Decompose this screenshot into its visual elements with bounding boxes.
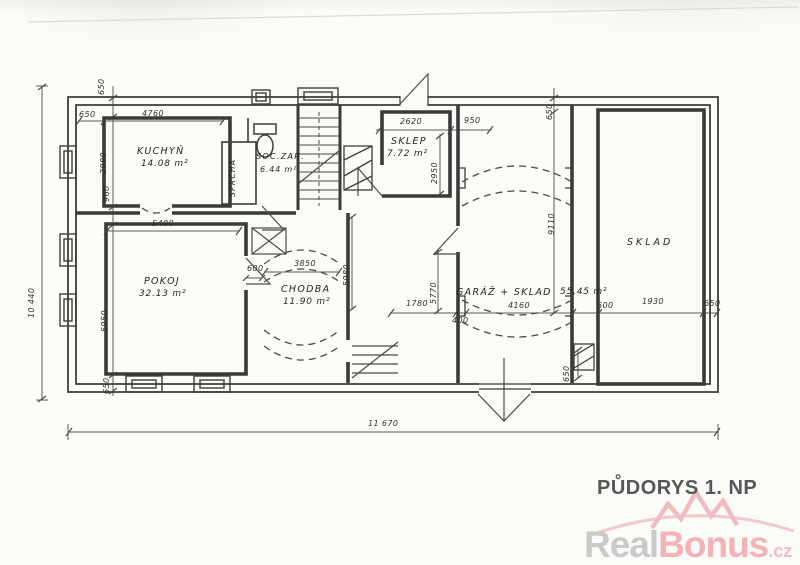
room-label-soc-zar: SOC.ZAŘ. [256,152,305,161]
dim-wall-bottom-left: 650 [102,378,111,394]
dim-garaz-nib: 400 [452,316,468,325]
room-label-kuchyn: KUCHYŇ [137,146,185,157]
scanned-floorplan-page: 10 440 11 670 650 650 4760 2980 960 5400… [0,0,800,565]
dim-wall-garaz-bottom: 650 [562,366,571,382]
watermark: RealBonus.cz [584,526,792,563]
room-area-soc-zar: 6.44 m² [260,165,297,174]
room-label-sklep: SKLEP [391,136,427,147]
scan-artifact-line [28,7,798,22]
dim-wall-top-right: 650 [545,104,554,120]
dim-overall-height: 10 440 [27,288,36,318]
watermark-real: Real [584,524,658,565]
stairs-small-icon [352,342,398,378]
room-area-garaz-sklad: 55,45 m² [560,287,607,297]
dim-pokoj-door: 600 [247,264,263,273]
room-area-kuchyn: 14.08 m² [141,159,188,169]
dim-chodba-height: 5980 [342,264,351,286]
dim-wall-top-left: 650 [97,79,106,95]
room-label-pokoj: POKOJ [144,276,180,287]
dim-kuchyn-door: 960 [102,186,111,202]
room-label-sprcha: SPRCHA [228,159,237,197]
dim-sklad-offset: 600 [597,301,613,310]
chimney-hatch [344,146,594,370]
dim-garaz-left-height: 5770 [429,282,438,304]
dim-wall-right: 650 [704,299,720,308]
dim-garaz-width: 4160 [508,301,530,310]
room-area-chodba: 11.90 m² [283,297,330,307]
dim-sklad-width: 1930 [642,297,664,306]
dim-chodba-width: 3850 [294,259,316,268]
room-label-sklad: SKLAD [627,237,673,248]
dim-overall-width: 11 670 [368,419,398,428]
dim-sklep-offset: 950 [464,116,480,125]
dim-pokoj-height: 5950 [100,310,109,332]
dim-wall-left: 650 [79,110,95,119]
room-label-chodba: CHODBA [281,284,330,295]
dimension-lines [36,86,718,440]
vault-arc-lines [142,166,572,360]
dim-kuchyn-height: 2980 [99,152,108,174]
watermark-bonus: Bonus [658,524,768,565]
window-symbols [60,88,338,392]
room-area-sklep: 7.72 m² [387,149,428,159]
dim-garaz-door: 1780 [406,299,428,308]
dim-kuchyn-width: 4760 [142,109,164,118]
room-area-pokoj: 32.13 m² [139,289,186,299]
room-label-garaz-sklad: GARÁŽ + SKLAD [456,287,552,298]
dim-garaz-height: 9110 [547,213,556,235]
dim-pokoj-width: 5400 [152,219,174,228]
drawing-title: PŮDORYS 1. NP [597,477,757,500]
dim-sklep-height: 2950 [430,162,439,184]
dim-sklep-width: 2620 [400,117,422,126]
watermark-cz: .cz [768,541,792,561]
door-symbols [246,74,530,421]
